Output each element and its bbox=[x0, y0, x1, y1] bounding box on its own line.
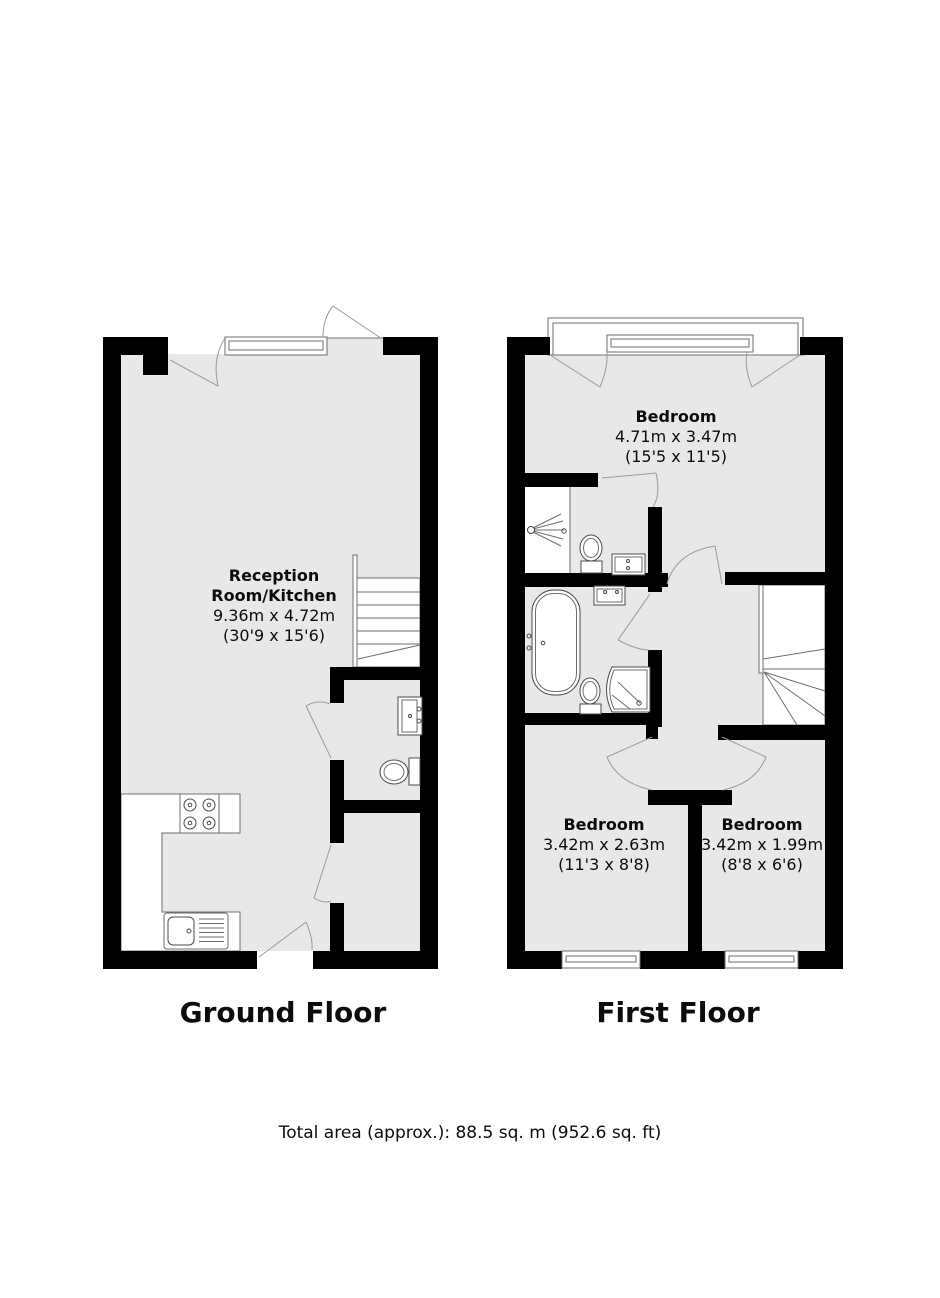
corner-shower-icon bbox=[607, 667, 651, 712]
room-dimensions-metric: 4.71m x 3.47m bbox=[576, 427, 776, 447]
room-dimensions-metric: 3.42m x 1.99m bbox=[662, 835, 862, 855]
wc-toilet-icon bbox=[380, 758, 420, 785]
toilet-icon bbox=[580, 535, 602, 573]
shower-icon bbox=[525, 487, 570, 573]
hob-icon bbox=[180, 794, 219, 833]
room-dimensions-imperial: (30'9 x 15'6) bbox=[174, 626, 374, 646]
room-dimensions-metric: 9.36m x 4.72m bbox=[174, 606, 374, 626]
room-label-reception-kitchen: Reception Room/Kitchen 9.36m x 4.72m (30… bbox=[174, 566, 374, 646]
room-dimensions-imperial: (15'5 x 11'5) bbox=[576, 447, 776, 467]
kitchen-sink-icon bbox=[164, 913, 228, 949]
room-name: Reception Room/Kitchen bbox=[189, 566, 359, 606]
toilet-icon bbox=[580, 678, 601, 714]
floorplan-page: Reception Room/Kitchen 9.36m x 4.72m (30… bbox=[0, 0, 940, 1298]
floorplan-drawing bbox=[0, 0, 940, 1298]
first-floor-title: First Floor bbox=[528, 997, 828, 1029]
bedroom-window-icon bbox=[725, 951, 798, 968]
wc-basin-icon bbox=[398, 697, 422, 735]
room-label-bedroom-1: Bedroom 4.71m x 3.47m (15'5 x 11'5) bbox=[576, 407, 776, 467]
room-name: Bedroom bbox=[677, 815, 847, 835]
bedroom-window-icon bbox=[562, 951, 640, 968]
bay-window-icon bbox=[548, 318, 803, 355]
room-name: Bedroom bbox=[591, 407, 761, 427]
basin-icon bbox=[594, 586, 625, 605]
room-dimensions-imperial: (8'8 x 6'6) bbox=[662, 855, 862, 875]
total-area-note: Total area (approx.): 88.5 sq. m (952.6 … bbox=[0, 1121, 940, 1145]
bathtub-icon bbox=[527, 590, 580, 695]
ground-floor-title: Ground Floor bbox=[133, 997, 433, 1029]
staircase-icon bbox=[759, 585, 825, 725]
window-icon bbox=[225, 337, 327, 355]
basin-icon bbox=[612, 554, 645, 575]
room-label-bedroom-3: Bedroom 3.42m x 1.99m (8'8 x 6'6) bbox=[662, 815, 862, 875]
